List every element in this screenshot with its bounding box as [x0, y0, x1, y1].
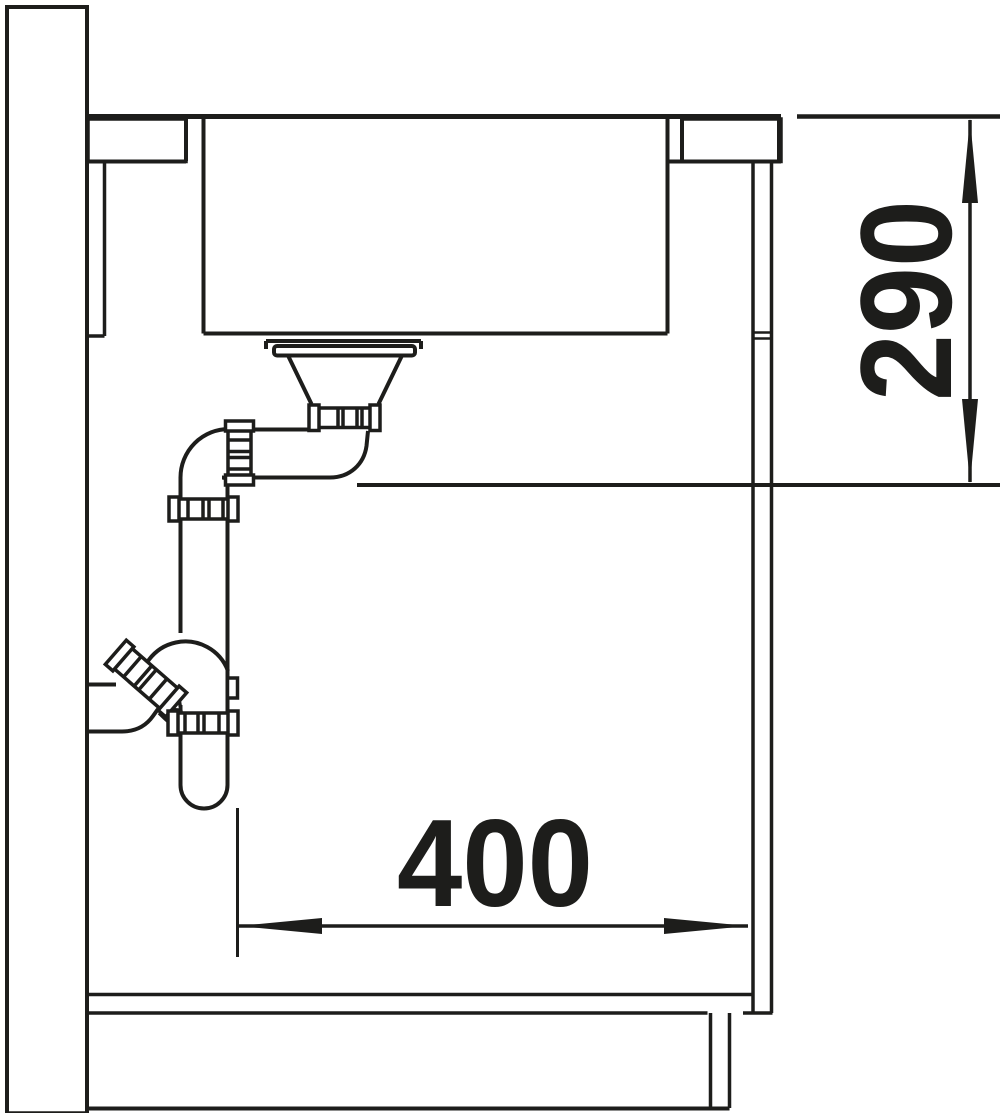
- sink-basin: [204, 119, 668, 334]
- standpipe-nut-left-cap: [169, 497, 179, 521]
- countertop-right-block-border: [668, 119, 781, 162]
- sink-section-diagram: 290 400: [0, 0, 1000, 1113]
- batten-outline: [88, 163, 105, 336]
- width-arrow-left-icon: [238, 918, 322, 934]
- technical-drawing-canvas: 290 400: [0, 0, 1000, 1113]
- trap-nut-right-cap: [228, 711, 238, 735]
- depth-arrow-down-icon: [962, 399, 978, 483]
- dimension-width: 400: [238, 795, 749, 957]
- elbow-union-nut: [226, 421, 254, 485]
- strainer-flange: [266, 341, 421, 404]
- backnut-body: [312, 408, 378, 428]
- countertop-left-block-border: [88, 119, 186, 162]
- wall-outline: [7, 7, 87, 1113]
- pipe-clip: [228, 678, 238, 698]
- flange-body: [274, 346, 415, 356]
- dimension-depth: 290: [357, 117, 1000, 486]
- width-arrow-right-icon: [664, 918, 748, 934]
- width-dimension-label: 400: [397, 795, 593, 933]
- trap-nut-left-cap: [168, 711, 178, 735]
- support-batten: [88, 163, 105, 336]
- countertop-left-hatch: [88, 119, 186, 162]
- trap-union-nut: [168, 711, 238, 735]
- wall-pipe-bottom: [87, 709, 158, 732]
- countertop: [87, 117, 781, 162]
- standpipe-nut-right-cap: [228, 497, 238, 521]
- depth-arrow-up-icon: [962, 119, 978, 203]
- backnut-right-cap: [370, 405, 380, 431]
- base-cabinet: [87, 163, 773, 1109]
- horizontal-pipe-bottom: [251, 431, 368, 478]
- elbow-outer-arc: [180, 429, 229, 478]
- wall-connection-nut: [105, 640, 192, 721]
- elbow-nut-top-cap: [226, 421, 254, 431]
- wall-hatching: [7, 7, 87, 1113]
- backnut-left-cap: [309, 405, 319, 431]
- siphon-trap: [87, 640, 238, 808]
- trap-u-bottom: [181, 785, 228, 809]
- drain-and-plumbing: [169, 341, 421, 671]
- countertop-right-hatch: [682, 119, 781, 162]
- cabinet-side-panel: [753, 163, 772, 1013]
- plinth-foot: [711, 1013, 730, 1108]
- strainer-backnut: [309, 405, 380, 431]
- standpipe-union-nut: [169, 497, 238, 521]
- wall-section: [7, 7, 87, 1113]
- elbow-nut-bottom-cap: [226, 475, 254, 485]
- strainer-cup-taper: [288, 356, 402, 405]
- depth-dimension-label: 290: [833, 200, 979, 401]
